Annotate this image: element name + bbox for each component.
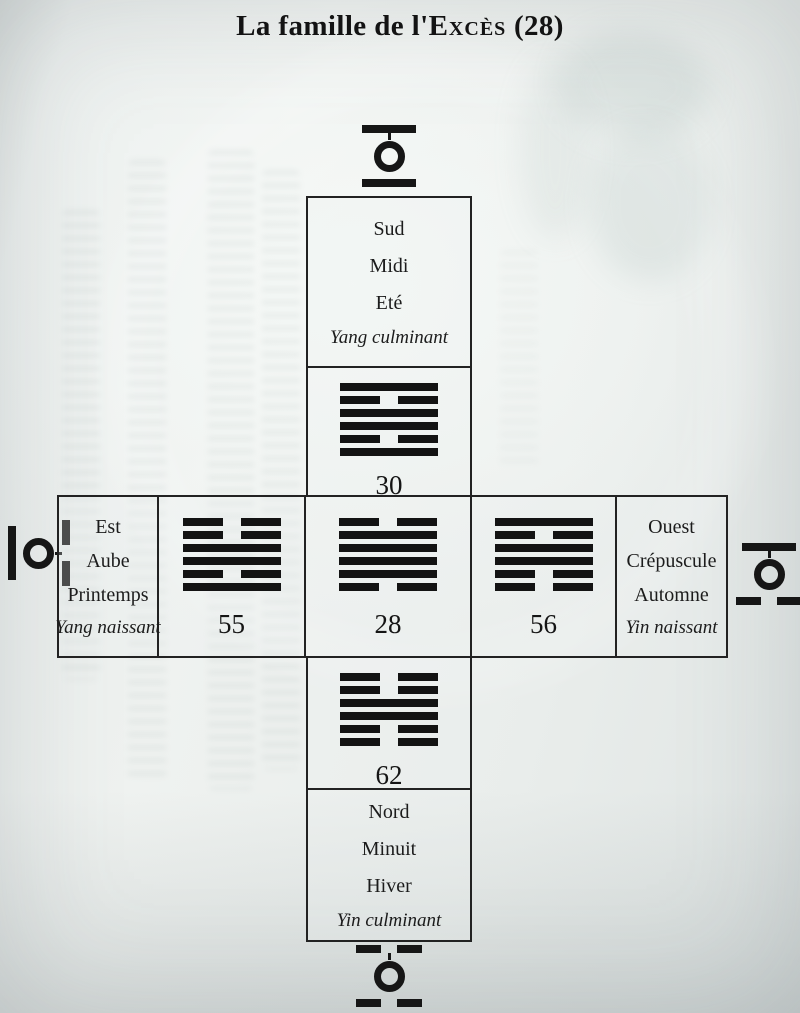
book-page: La famille de l'Excès (28) Sud Midi Eté …	[0, 0, 800, 1013]
hexagram-28-number: 28	[375, 609, 402, 640]
direction-note: Yang naissant	[55, 612, 160, 644]
direction-label: Hiver	[366, 868, 412, 905]
north-direction-cell: Nord Minuit Hiver Yin culminant	[306, 788, 472, 942]
west-direction-cell: Ouest Crépuscule Automne Yin naissant	[617, 497, 726, 656]
hexagram-55-cell: 55	[159, 497, 306, 656]
hexagram-28-figure	[339, 518, 437, 596]
direction-label: Aube	[86, 544, 129, 578]
page-title-prefix: La famille de l'	[236, 10, 428, 42]
hexagram-62-number: 62	[376, 760, 403, 791]
hexagram-56-figure	[495, 518, 593, 596]
direction-label: Midi	[370, 248, 409, 285]
direction-note: Yin culminant	[337, 905, 442, 937]
middle-band: Est Aube Printemps Yang naissant 55 28 5…	[57, 495, 728, 658]
hexagram-62-cell: 62	[306, 656, 472, 790]
direction-label: Nord	[368, 794, 409, 831]
direction-label: Crépuscule	[627, 544, 717, 578]
direction-label: Minuit	[362, 831, 416, 868]
hexagram-56-number: 56	[530, 609, 557, 640]
direction-label: Automne	[634, 578, 708, 612]
hexagram-30-cell: 30	[306, 366, 472, 497]
hexagram-55-number: 55	[218, 609, 245, 640]
east-direction-cell: Est Aube Printemps Yang naissant	[59, 497, 159, 656]
bleed-through-column	[128, 160, 166, 780]
bleed-through-column	[500, 250, 538, 470]
bleed-through-smudge	[590, 130, 710, 280]
west-emblem-icon	[736, 543, 800, 605]
south-emblem-icon	[362, 125, 416, 187]
north-emblem-icon	[356, 945, 422, 1007]
direction-label: Ouest	[648, 510, 695, 544]
direction-label: Eté	[376, 285, 403, 322]
direction-note: Yang culminant	[330, 322, 448, 354]
bleed-through-column	[262, 170, 300, 770]
bleed-through-smudge	[560, 30, 710, 140]
hexagram-56-cell: 56	[472, 497, 617, 656]
direction-label: Sud	[373, 211, 404, 248]
hexagram-62-figure	[340, 673, 438, 751]
hexagram-55-figure	[183, 518, 281, 596]
direction-label: Est	[95, 510, 121, 544]
south-direction-cell: Sud Midi Eté Yang culminant	[306, 196, 472, 368]
page-title-smallcaps: Excès	[429, 10, 507, 42]
direction-note: Yin naissant	[625, 612, 717, 644]
hexagram-30-figure	[340, 383, 438, 461]
page-title: La famille de l'Excès (28)	[0, 10, 800, 43]
page-title-suffix: (28)	[506, 10, 564, 42]
direction-label: Printemps	[67, 578, 148, 612]
bleed-through-column	[208, 150, 254, 790]
hexagram-28-cell: 28	[306, 497, 472, 656]
bleed-through-smudge	[520, 60, 590, 240]
